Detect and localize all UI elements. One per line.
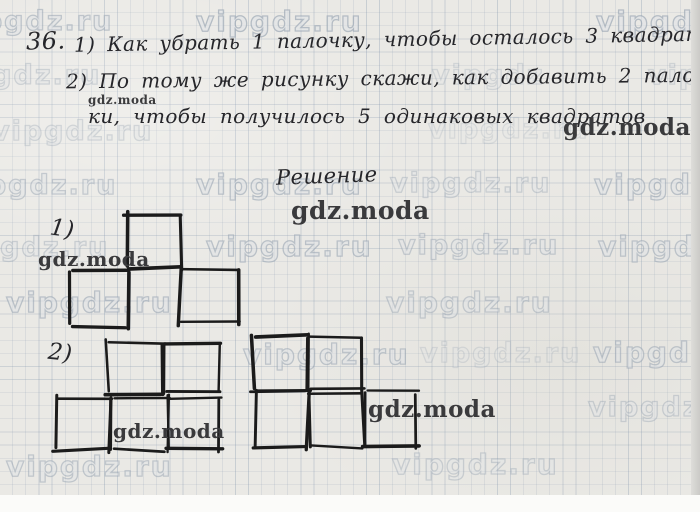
watermark-dark-gdzmoda: gdz.moda	[368, 396, 496, 423]
stick-square	[53, 395, 112, 452]
stick-square	[250, 334, 308, 392]
stick-segment	[53, 448, 108, 451]
problem-number: 36.	[26, 26, 66, 55]
watermark-dark-gdzmoda: gdz.moda	[563, 114, 691, 141]
stick-segment	[181, 269, 238, 270]
stick-segment	[56, 395, 57, 447]
stick-square	[307, 337, 364, 391]
stick-segment	[106, 339, 109, 391]
solution-heading: Решение	[276, 162, 378, 190]
stick-segment	[307, 338, 308, 390]
stick-segment	[72, 327, 125, 328]
stick-segment	[170, 398, 222, 399]
stick-segment	[114, 449, 164, 452]
stick-segment	[256, 335, 308, 337]
stick-segment	[253, 447, 305, 448]
stick-segment	[219, 343, 220, 391]
stick-square	[308, 389, 365, 448]
stick-segment	[164, 343, 220, 344]
watermark-dark-gdzmoda: gdz.moda	[88, 93, 157, 107]
stick-square	[162, 343, 220, 394]
stick-square	[105, 339, 166, 394]
stick-segment	[178, 266, 181, 326]
stick-segment	[128, 273, 129, 329]
figure2-label: 2)	[47, 339, 74, 367]
stick-segment	[363, 446, 419, 447]
watermark-dark-gdzmoda: gdz.moda	[291, 196, 430, 225]
stick-segment	[255, 390, 256, 447]
stick-square	[253, 390, 310, 450]
fig2-right-five-squares	[250, 334, 419, 450]
stick-square	[178, 266, 239, 326]
stick-segment	[166, 448, 223, 449]
stick-segment	[109, 342, 166, 343]
stick-square	[69, 270, 128, 328]
stick-segment	[309, 392, 310, 447]
figure1-label: 1)	[48, 214, 76, 243]
page-edge-bottom	[0, 495, 700, 512]
stick-segment	[180, 217, 181, 270]
notebook-page: vipgdz.ruvipgdz.ruvipgdzvipgdz.ruvipgdzv…	[0, 0, 700, 512]
stick-segment	[251, 335, 254, 388]
stick-segment	[309, 337, 361, 338]
watermark-dark-gdzmoda: gdz.moda	[113, 419, 225, 443]
watermark-dark-gdzmoda: gdz.moda	[38, 247, 150, 271]
stick-segment	[162, 345, 163, 395]
page-edge-right	[691, 0, 700, 512]
stick-segment	[311, 445, 362, 448]
